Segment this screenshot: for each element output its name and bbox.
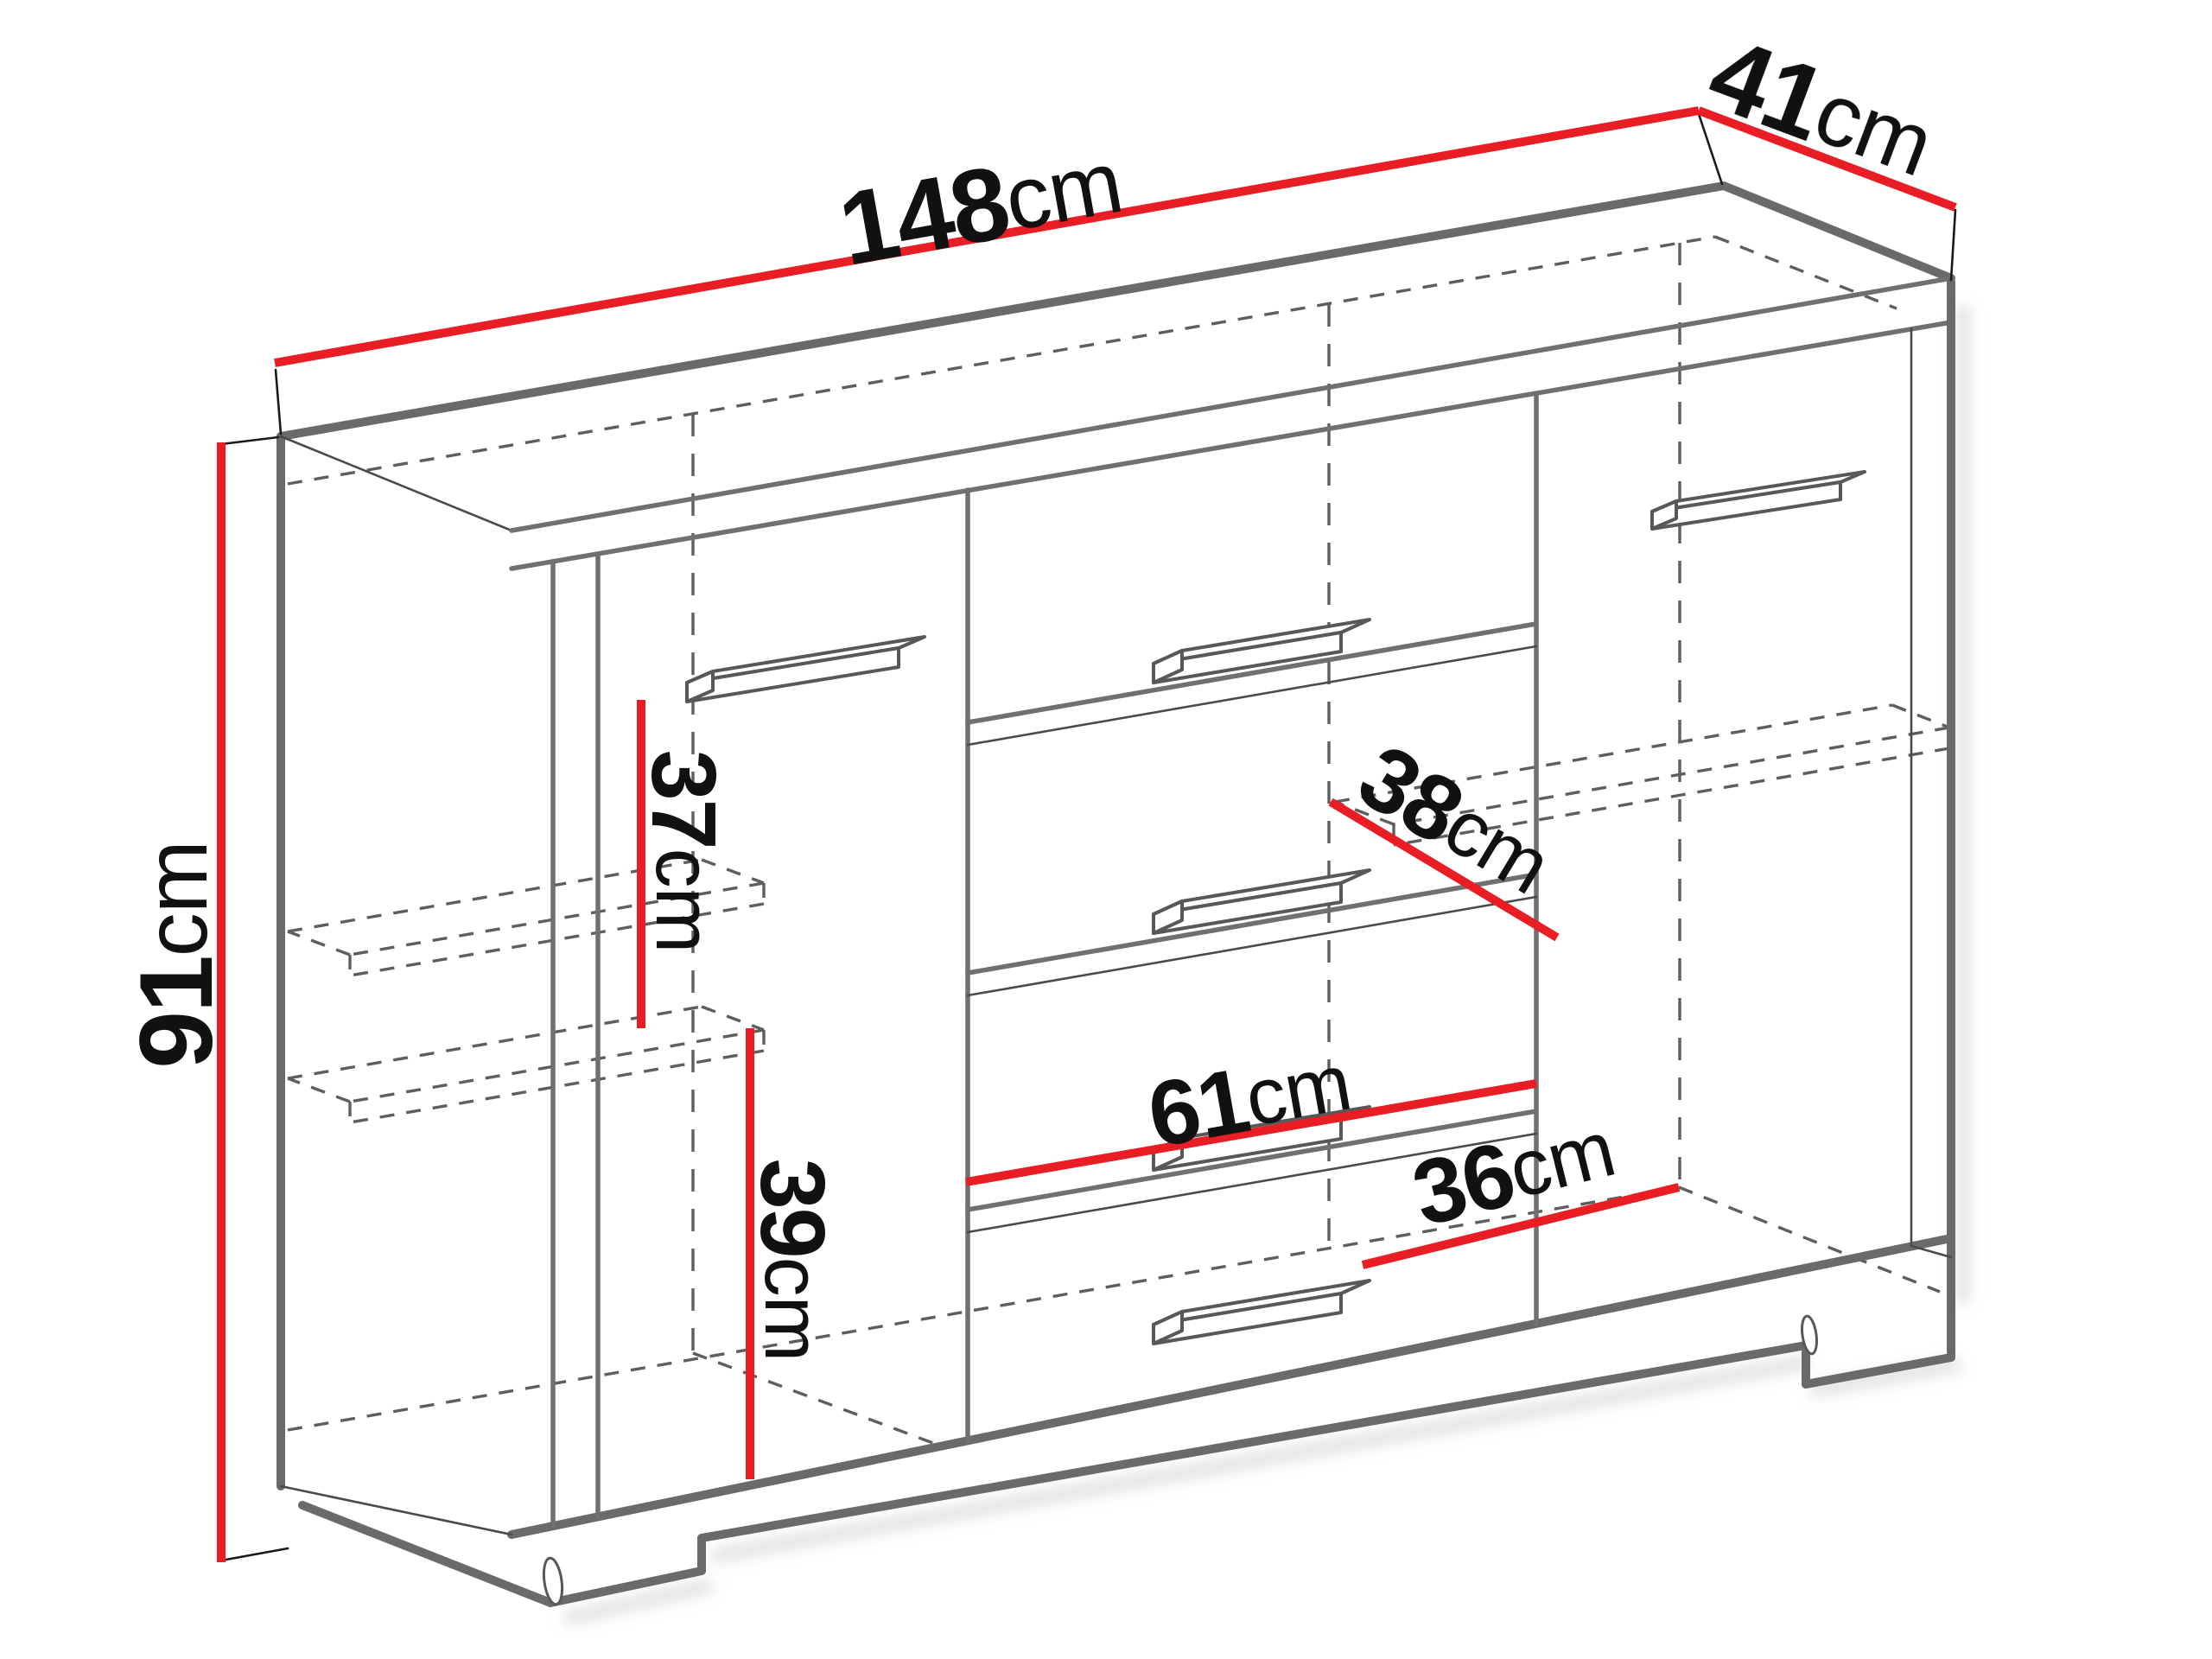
- dimension-height-label: 91cm: [118, 841, 234, 1068]
- dimension-39-label: 39cm: [741, 1159, 843, 1362]
- dimension-37-label: 37cm: [632, 750, 734, 953]
- dimension-extension-lines: [221, 114, 1955, 1560]
- bottom-front-edge: [512, 1238, 1951, 1535]
- plinth-left-depth-edge: [302, 1505, 550, 1603]
- right-door-handle-icon: [1652, 472, 1865, 529]
- plinth-and-feet: [302, 1309, 1951, 1605]
- handles: [687, 472, 1865, 1344]
- dimension-diagram-page: 148cm 41cm 91cm 37cm 39cm 38cm 61cm 36cm: [0, 0, 2212, 1659]
- dimension-width-label: 148cm: [831, 124, 1131, 288]
- toe-kick-bottom-edge: [702, 1345, 1806, 1538]
- drawer-4-handle-icon: [1154, 1281, 1370, 1344]
- left-door-handle-icon: [687, 637, 925, 702]
- hidden-interior-lines: [288, 237, 1949, 1445]
- dimension-36-label: 36cm: [1403, 1097, 1624, 1245]
- bottom-right-depth-edge: [1911, 1246, 1951, 1257]
- dimension-depth-label: 41cm: [1694, 15, 1948, 203]
- dimension-lines: [221, 111, 1955, 1562]
- cabinet-outline: [281, 186, 1951, 1535]
- dimension-labels: 148cm 41cm 91cm 37cm 39cm 38cm 61cm 36cm: [118, 15, 1948, 1361]
- cabinet-dimension-diagram: 148cm 41cm 91cm 37cm 39cm 38cm 61cm 36cm: [0, 0, 2212, 1659]
